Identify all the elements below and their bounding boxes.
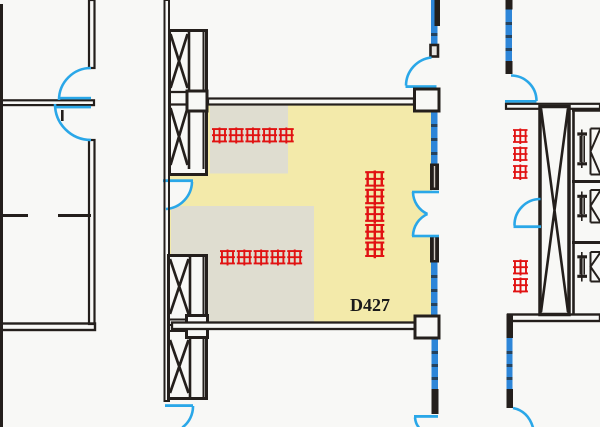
- svg-text:D427: D427: [350, 295, 390, 315]
